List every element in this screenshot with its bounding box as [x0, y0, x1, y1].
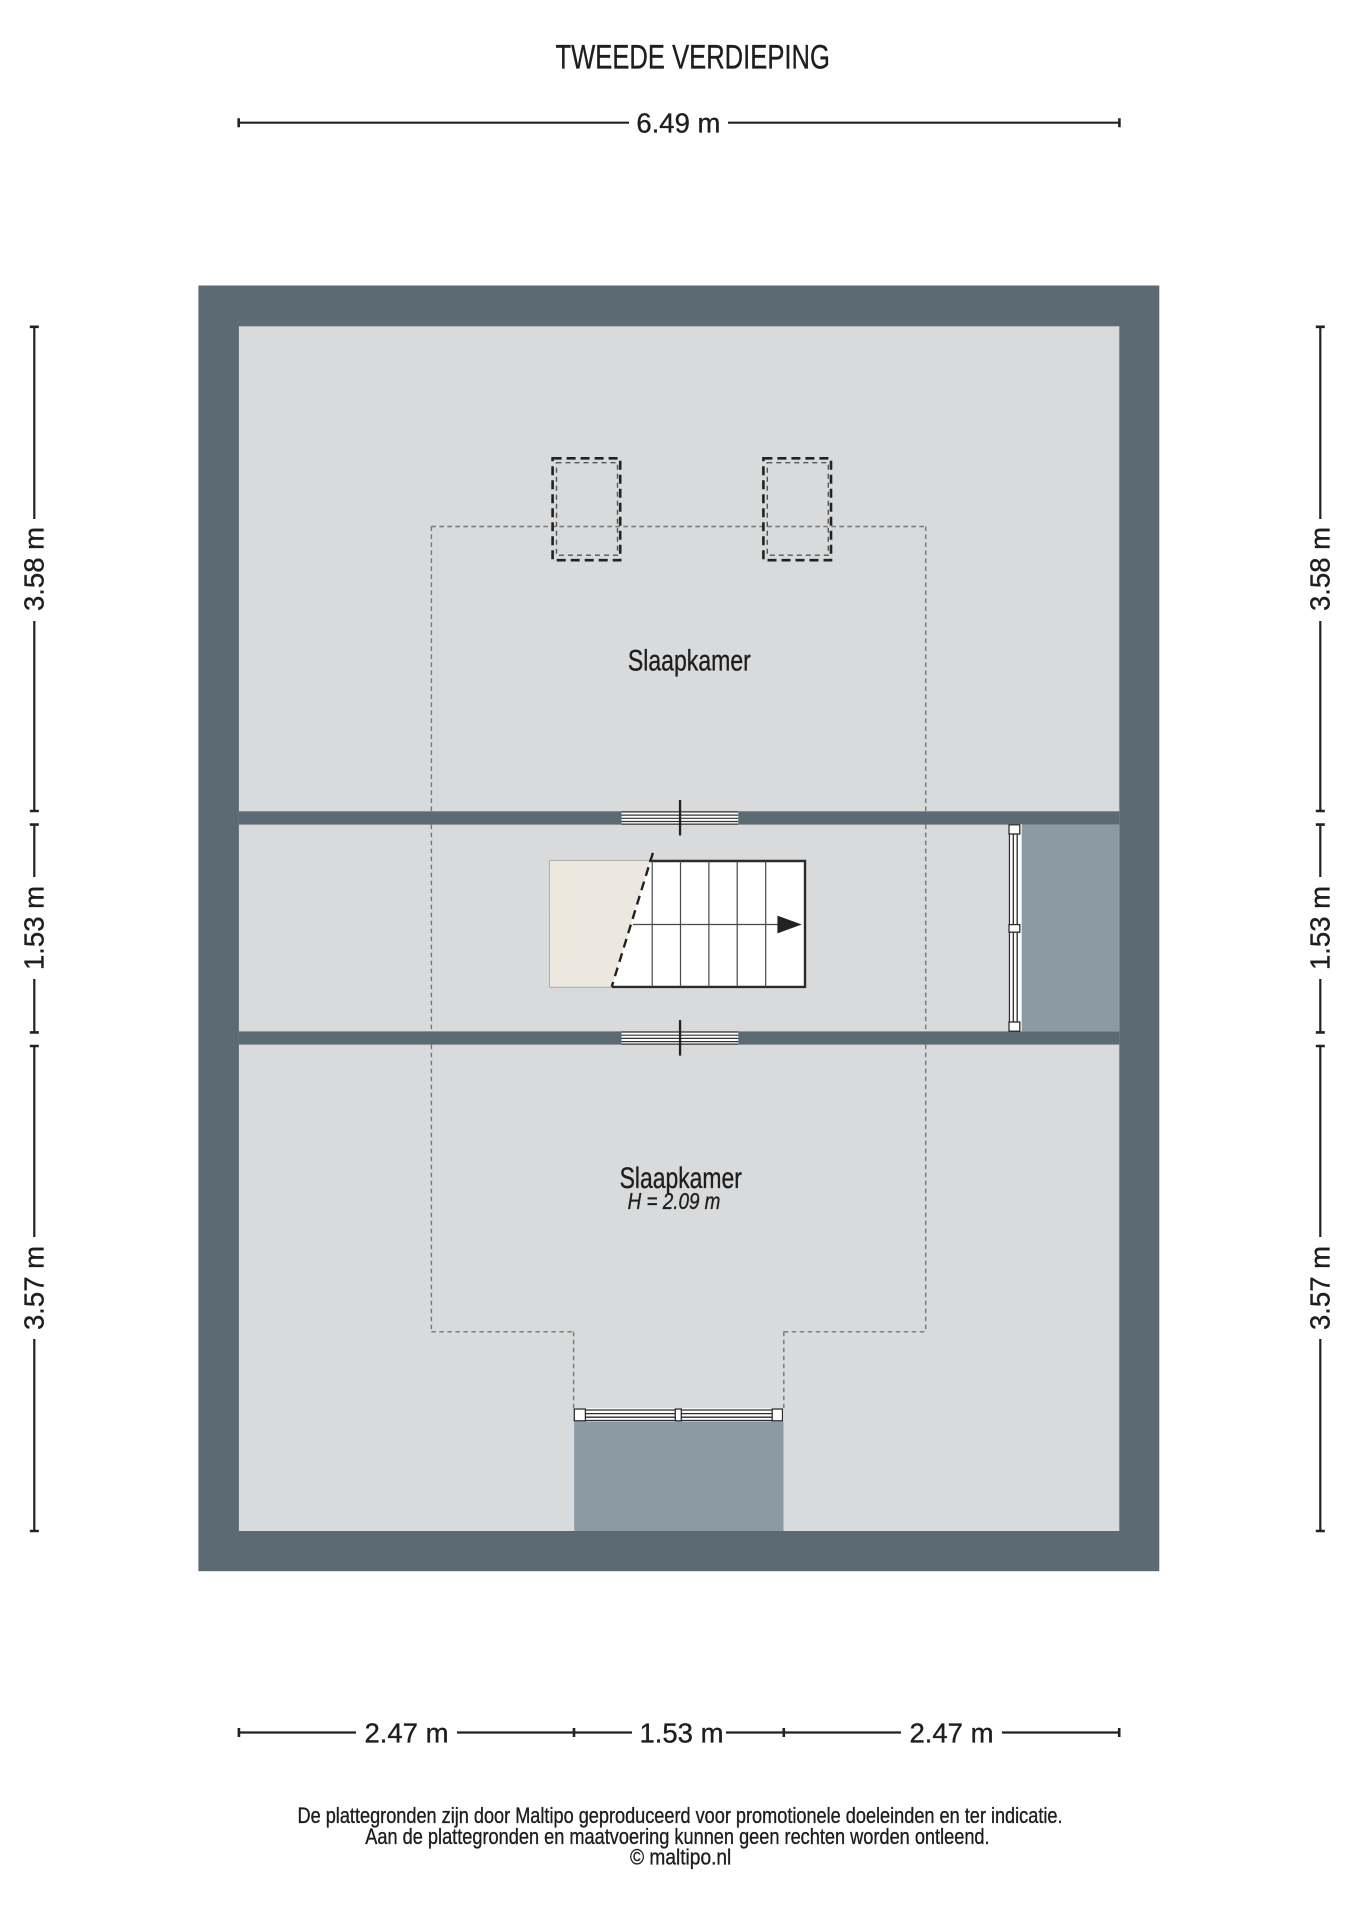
svg-text:3.57 m: 3.57 m [1305, 1246, 1336, 1330]
svg-text:Slaapkamer: Slaapkamer [628, 644, 751, 677]
svg-text:1.53 m: 1.53 m [19, 886, 50, 970]
svg-text:© maltipo.nl: © maltipo.nl [630, 1845, 731, 1870]
svg-text:TWEEDE VERDIEPING: TWEEDE VERDIEPING [556, 38, 830, 76]
svg-text:1.53 m: 1.53 m [639, 1718, 723, 1749]
svg-text:3.58 m: 3.58 m [19, 527, 50, 611]
svg-text:2.47 m: 2.47 m [364, 1718, 448, 1749]
svg-text:6.49 m: 6.49 m [636, 108, 720, 139]
svg-text:1.53 m: 1.53 m [1305, 886, 1336, 970]
svg-text:3.58 m: 3.58 m [1305, 527, 1336, 611]
svg-text:2.47 m: 2.47 m [909, 1718, 993, 1749]
svg-text:H = 2.09 m: H = 2.09 m [628, 1188, 721, 1214]
svg-text:3.57 m: 3.57 m [19, 1246, 50, 1330]
